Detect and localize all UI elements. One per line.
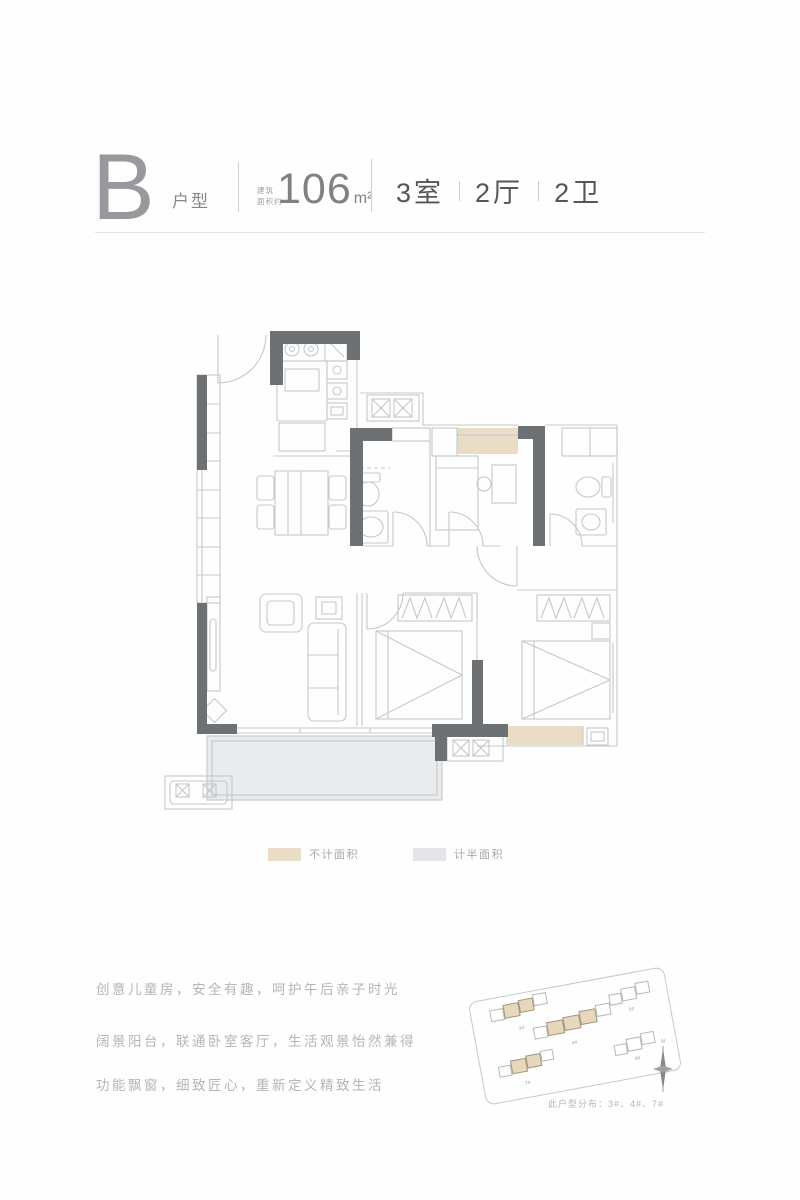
legend-item-bay-window: 不计面积 (268, 846, 359, 862)
building-4: 4# (531, 1003, 615, 1053)
bay-window-swatch (268, 848, 301, 861)
building-5: 5# (607, 981, 652, 1016)
site-plan: 3# 4# 7# 5# (462, 948, 692, 1113)
header-divider (238, 162, 239, 212)
building-6: 6# (613, 1031, 658, 1065)
header-divider (371, 159, 372, 212)
floor-plan (140, 313, 660, 825)
north-label: N (661, 1039, 665, 1045)
unit-type-letter: B (92, 140, 155, 234)
description-line: 创意儿童房，安全有趣，呵护午后亲子时光 (96, 978, 400, 998)
half-area-balcony-fill (207, 736, 442, 800)
area-group: 106 m² (277, 165, 372, 214)
legend-label: 不计面积 (309, 846, 359, 862)
description-line: 功能飘窗，细致匠心，重新定义精致生活 (96, 1074, 384, 1094)
room-spec-divider (459, 181, 460, 201)
description-line: 阔景阳台，联通卧室客厅，生活观景怡然兼得 (96, 1030, 416, 1050)
room-spec-divider (538, 181, 539, 201)
building-label: 3# (518, 1025, 525, 1032)
building-7: 7# (497, 1049, 558, 1091)
area-unit: m² (354, 190, 373, 208)
building-label: 4# (571, 1040, 578, 1047)
half-area-swatch (413, 848, 446, 861)
floorplan-brochure-page: B 户型 建筑面积约 106 m² 3室 2厅 2卫 (0, 0, 800, 1200)
legend-item-half-area: 计半面积 (413, 846, 504, 862)
site-plan-caption: 此户型分布：3#、4#、7# (548, 1097, 664, 1110)
header-rule (95, 232, 705, 233)
unit-type-label: 户型 (172, 187, 210, 212)
room-spec: 3室 2厅 2卫 (396, 171, 602, 210)
compass-icon: N (653, 1039, 673, 1092)
hall-count: 2厅 (475, 171, 523, 210)
area-value: 106 (277, 165, 352, 214)
legend-label: 计半面积 (454, 846, 504, 862)
building-label: 6# (635, 1055, 642, 1062)
building-label: 5# (628, 1006, 635, 1013)
bath-count: 2卫 (554, 171, 602, 210)
room-count: 3室 (396, 171, 444, 210)
building-label: 7# (525, 1080, 532, 1087)
